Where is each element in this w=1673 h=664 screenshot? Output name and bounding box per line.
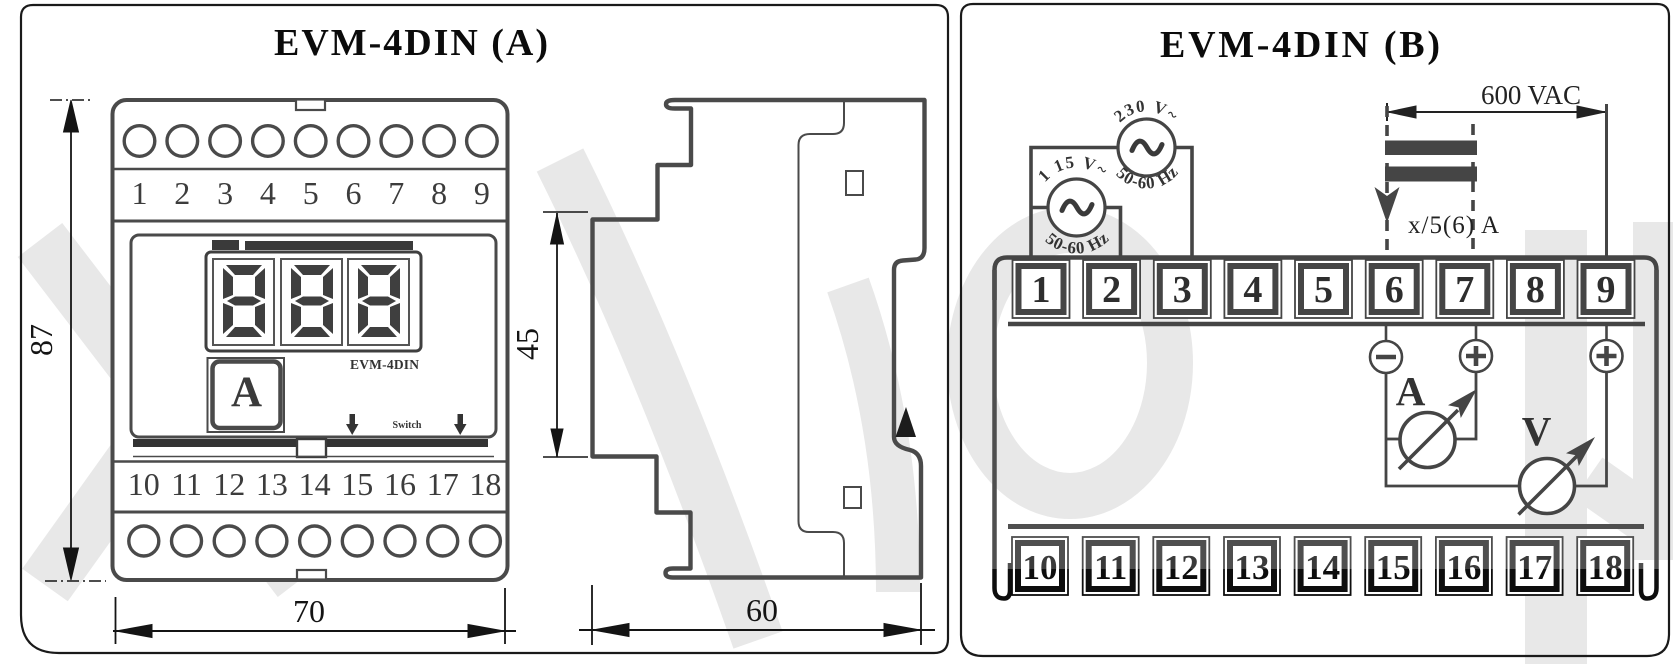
- svg-text:1: 1: [1032, 269, 1051, 311]
- svg-text:70: 70: [293, 593, 325, 629]
- svg-text:7: 7: [1455, 269, 1474, 311]
- svg-text:3: 3: [217, 175, 233, 211]
- svg-text:A: A: [1396, 368, 1426, 414]
- svg-text:14: 14: [299, 466, 331, 502]
- svg-text:17: 17: [427, 466, 459, 502]
- svg-text:9: 9: [1597, 269, 1616, 311]
- svg-text:12: 12: [213, 466, 245, 502]
- svg-text:6: 6: [1385, 269, 1404, 311]
- svg-text:15: 15: [341, 466, 373, 502]
- svg-text:V: V: [1522, 408, 1552, 454]
- svg-text:10: 10: [128, 466, 160, 502]
- svg-text:11: 11: [171, 466, 202, 502]
- svg-text:4: 4: [260, 175, 276, 211]
- svg-text:13: 13: [256, 466, 288, 502]
- svg-text:A: A: [231, 369, 262, 416]
- svg-text:2: 2: [1102, 269, 1121, 311]
- svg-text:2: 2: [174, 175, 190, 211]
- svg-text:Switch: Switch: [393, 420, 422, 431]
- svg-text:45: 45: [509, 328, 545, 360]
- svg-text:87: 87: [23, 324, 59, 356]
- svg-text:x/5(6) A: x/5(6) A: [1408, 212, 1499, 239]
- svg-text:8: 8: [431, 175, 447, 211]
- svg-text:9: 9: [474, 175, 490, 211]
- svg-text:60: 60: [746, 592, 778, 628]
- svg-text:8: 8: [1526, 269, 1545, 311]
- svg-text:18: 18: [469, 466, 501, 502]
- svg-text:600 VAC: 600 VAC: [1481, 80, 1581, 110]
- svg-text:6: 6: [346, 175, 362, 211]
- svg-text:1: 1: [132, 175, 148, 211]
- svg-text:16: 16: [384, 466, 416, 502]
- svg-text:4: 4: [1243, 269, 1262, 311]
- svg-text:5: 5: [1314, 269, 1333, 311]
- svg-text:7: 7: [388, 175, 404, 211]
- svg-text:EVM-4DIN: EVM-4DIN: [350, 357, 419, 372]
- svg-text:EVM-4DIN (A): EVM-4DIN (A): [274, 22, 548, 64]
- svg-text:5: 5: [303, 175, 319, 211]
- svg-text:3: 3: [1173, 269, 1192, 311]
